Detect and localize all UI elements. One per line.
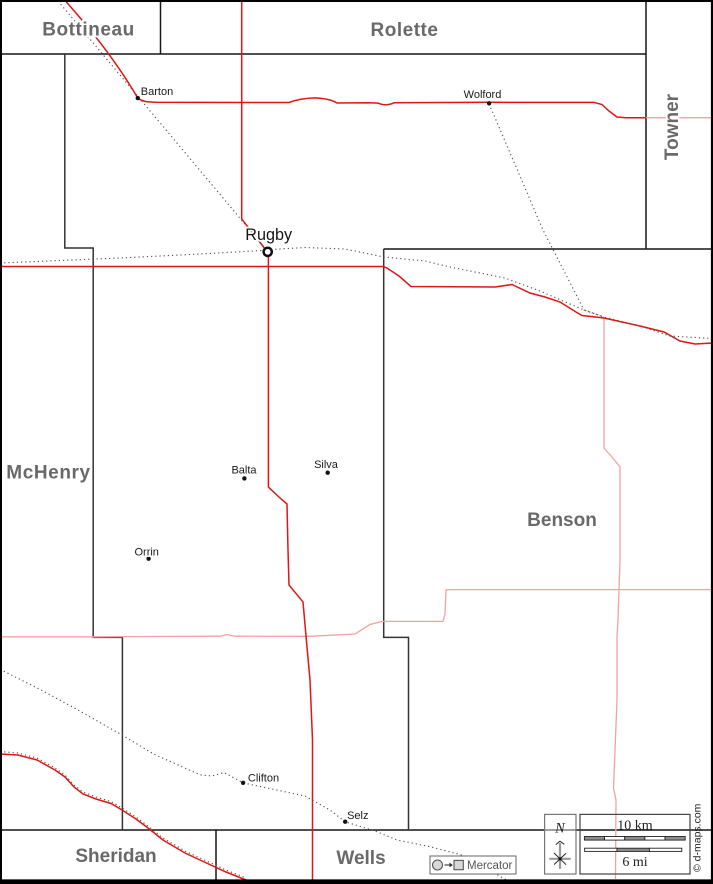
svg-text:N: N [554, 821, 566, 837]
svg-text:Selz: Selz [347, 810, 368, 822]
svg-text:Silva: Silva [314, 459, 339, 471]
svg-text:6 mi: 6 mi [622, 855, 647, 870]
svg-text:Orrin: Orrin [134, 547, 158, 559]
svg-text:10 km: 10 km [617, 819, 653, 834]
svg-text:Bottineau: Bottineau [42, 20, 135, 41]
svg-text:Barton: Barton [141, 86, 173, 98]
svg-text:Wells: Wells [336, 848, 385, 869]
svg-text:Towner: Towner [662, 93, 683, 160]
svg-text:Mercator: Mercator [467, 860, 513, 872]
svg-text:Sheridan: Sheridan [75, 846, 156, 867]
svg-text:Wolford: Wolford [464, 89, 502, 101]
svg-text:Benson: Benson [527, 510, 597, 531]
svg-text:© d-maps.com: © d-maps.com [692, 803, 704, 872]
svg-text:Rugby: Rugby [245, 226, 293, 244]
svg-text:Balta: Balta [231, 465, 257, 477]
svg-text:McHenry: McHenry [6, 463, 90, 484]
svg-text:Clifton: Clifton [248, 772, 279, 784]
svg-text:Rolette: Rolette [371, 20, 439, 41]
